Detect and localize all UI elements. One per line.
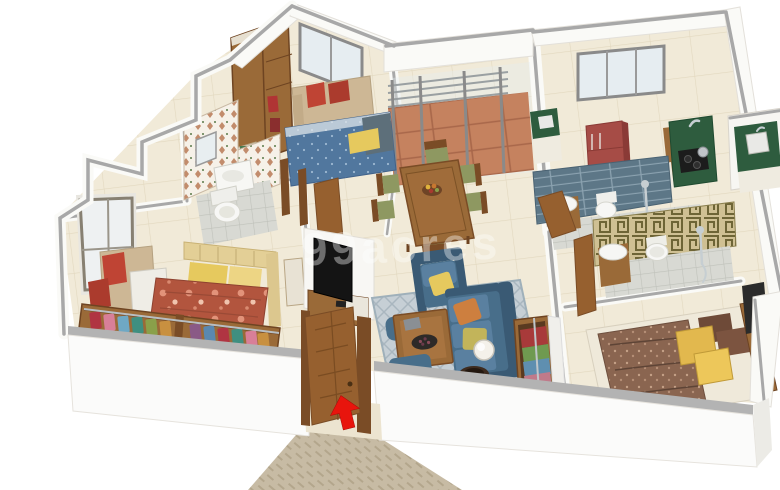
- hanging-clothes-red: [267, 96, 278, 113]
- bolster: [292, 94, 304, 126]
- utility-sink: [746, 132, 769, 154]
- hanging-clothes-dark-red: [270, 118, 280, 132]
- floor-lamp: [474, 340, 494, 360]
- kitchen-counter-left: [530, 108, 562, 164]
- bathroom2-door: [574, 234, 596, 316]
- floor-plan-svg: 99acres: [0, 0, 780, 490]
- watermark: 99acres: [301, 217, 502, 276]
- door-frame-right: [357, 316, 371, 434]
- utility-area: [728, 108, 780, 193]
- kitchen-window: [578, 46, 664, 100]
- entrance: [301, 307, 382, 440]
- media-device: [336, 301, 346, 308]
- red-pillow: [306, 82, 326, 108]
- red-pillow: [328, 80, 350, 104]
- door-knob: [348, 382, 353, 387]
- wall-hung-toilet: [646, 235, 668, 261]
- floor-plan-image: 99acres: [0, 0, 780, 490]
- dining-chair: [424, 139, 449, 164]
- kettle: [698, 147, 708, 157]
- sink: [538, 115, 554, 129]
- toilet: [596, 191, 617, 218]
- yellow-pillow: [694, 348, 733, 385]
- washbasin: [598, 243, 631, 287]
